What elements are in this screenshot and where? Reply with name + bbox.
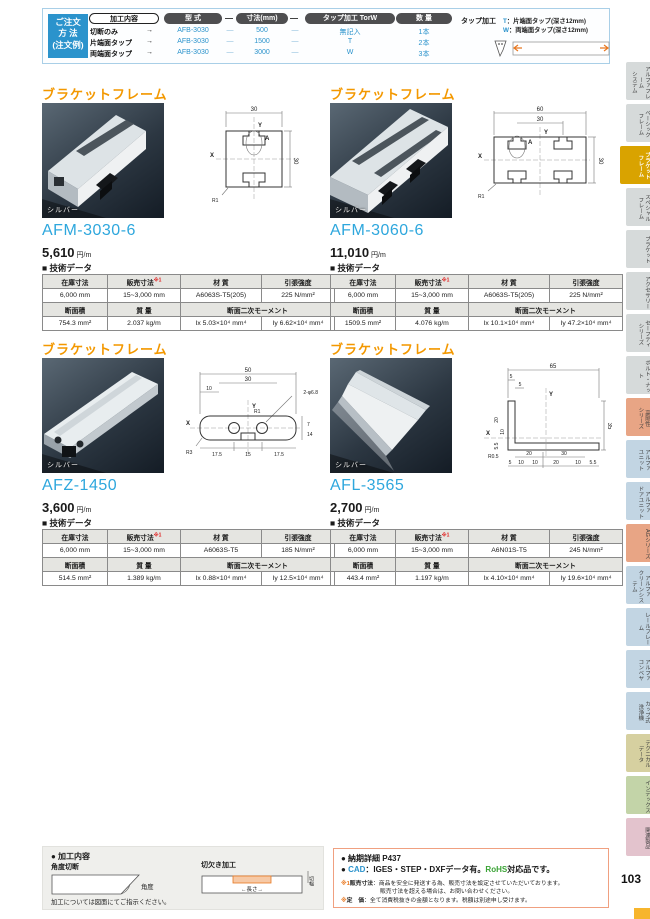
td-sales: 15~3,000 mm [396,289,469,303]
tab-bracket[interactable]: ブラケット [626,230,650,268]
th-material: 材 質 [469,275,550,289]
tab-technical-data[interactable]: テクニカル データ [626,734,650,772]
col-size: 寸法(mm) [236,13,288,24]
th-mass: 質 量 [396,558,469,572]
cross-section-diagram: 30 A Y X 30 R1 [170,103,324,221]
arrow-icon: → [146,27,153,34]
svg-text:15: 15 [245,452,251,458]
row-processing: 片端面タップ [90,38,150,48]
extrusion-photo-art [330,358,452,473]
td-iy: Iy 6.62×10⁴ mm⁴ [262,317,335,331]
tap-legend-title: タップ加工 [461,16,496,26]
svg-text:30: 30 [561,451,567,457]
svg-text:17.5: 17.5 [274,452,284,458]
price-value: 11,010 [330,245,369,260]
angle-cut-label: 角度切断 [51,862,79,872]
tab-alpha-conveyor[interactable]: アルファ コンベヤ [626,650,650,688]
svg-text:5: 5 [519,382,522,388]
th-material: 材 質 [469,530,550,544]
tab-alpha-unit[interactable]: アルファ ユニット [626,440,650,478]
td-area: 754.3 mm² [43,317,108,331]
svg-text:30: 30 [537,117,544,123]
th-mass: 質 量 [108,558,181,572]
tab-rail-frame[interactable]: レールフレーム [626,608,650,646]
svg-text:5: 5 [509,460,512,466]
product-code[interactable]: AFM-3060-6 [330,222,424,240]
note-text: ：全て消費税抜きの金額となります。税額は別途申し受けます。 [364,898,531,904]
product-photo: シルバー [42,103,164,218]
color-label: シルバー [47,460,79,470]
tab-accessory[interactable]: アクセサリー [626,272,650,310]
dash: — [290,38,300,45]
cad-rohs-note: ● CAD：IGES・STEP・DXFデータ有。RoHS対応品です。 [341,864,554,875]
svg-text:20: 20 [553,460,559,466]
svg-text:R3: R3 [186,450,193,456]
row-model: AFB-3030 [164,49,222,56]
svg-text:60: 60 [537,107,544,113]
tab-bracket-frame-active[interactable]: ブラケット フレーム [620,146,650,184]
extrusion-photo-art [330,103,452,218]
th-tensile: 引張強度 [550,275,623,289]
th-moment: 断面二次モーメント [469,558,623,572]
svg-text:30: 30 [251,107,258,113]
th-sales: 販売寸法※1 [108,275,181,289]
th-stock: 在庫寸法 [331,275,396,289]
th-mass: 質 量 [396,303,469,317]
svg-text:10: 10 [532,460,538,466]
td-ix: Ix 5.03×10⁴ mm⁴ [181,317,262,331]
row-size: 500 [236,27,288,34]
svg-text:10: 10 [206,386,212,392]
col-qty: 数 量 [396,13,452,24]
cross-section-drawing: 65 5 5 Y X 35 20 10 5.5 20 30 5 10 10 20… [458,358,612,476]
svg-text:5.5: 5.5 [590,460,597,466]
processing-info-box: ● 加工内容 角度切断 角度 切欠き加工 切幅 ←長さ→ 加工については図面にて… [42,846,324,910]
svg-text:切幅: 切幅 [308,875,314,887]
svg-text:7: 7 [307,422,310,428]
cross-section-diagram: 60 30 A Y X 30 R1 [458,103,612,221]
td-mass: 1.389 kg/m [108,572,181,586]
cad-label: CAD [348,865,365,874]
th-moment: 断面二次モーメント [469,303,623,317]
price-value: 5,610 [42,245,75,260]
th-moment: 断面二次モーメント [181,558,335,572]
th-tensile: 引張強度 [262,530,335,544]
tech-table: 在庫寸法 販売寸法※1 材 質 引張強度 6,000 mm 15~3,000 m… [42,529,335,586]
note-label: 定 価 [347,898,364,904]
product-card: ブラケットフレーム シルバー 65 5 5 Y X 35 20 1 [330,339,612,589]
dash: — [290,27,300,34]
td-ix: Ix 10.1×10⁴ mm⁴ [469,317,550,331]
row-size: 3000 [236,49,288,56]
row-tap: T [305,38,395,45]
th-area: 断面積 [43,558,108,572]
tap-w-text: ：両端面タップ(深さ12mm) [509,27,588,34]
th-tensile: 引張強度 [262,275,335,289]
tab-safety-series[interactable]: セーフティ シリーズ [626,314,650,352]
product-card: ブラケットフレーム シルバー 60 30 [330,84,612,334]
cross-section-drawing: 30 A Y X 30 R1 [170,103,324,221]
dash: — [225,14,233,23]
td-sales: 15~3,000 mm [108,289,181,303]
cross-section-drawing: 50 30 10 2-φ6.8 Y X R1 17.5 15 17.5 7 14 [170,358,324,476]
tap-t-text: ：片端面タップ(深さ12mm) [507,18,586,25]
price-value: 3,600 [42,500,75,515]
svg-text:A: A [528,140,533,146]
note-label: 販売寸法 [350,881,373,887]
td-stock: 6,000 mm [43,544,108,558]
price-note: ※定 価：全て消費税抜きの金額となります。税額は別途申し受けます。 [341,895,531,904]
tab-ag-series[interactable]: AGシリーズ [626,524,650,562]
dash: — [290,49,300,56]
row-tap: W [305,49,395,56]
svg-text:20: 20 [494,417,500,423]
svg-text:X: X [486,431,490,437]
sales-size-note-2: 販売寸法を超える場合は、お問い合わせください。 [380,886,513,895]
svg-text:2-φ6.8: 2-φ6.8 [303,390,318,396]
th-sales: 販売寸法※1 [396,275,469,289]
svg-text:←長さ→: ←長さ→ [241,886,263,893]
cross-section-drawing: 60 30 A Y X 30 R1 [458,103,612,221]
th-stock: 在庫寸法 [43,530,108,544]
product-category: ブラケットフレーム [330,339,456,358]
tech-data-heading: ■ 技術データ [42,262,92,274]
product-price: 11,010円/m [330,244,386,262]
page-number: 103 [621,872,641,886]
th-stock: 在庫寸法 [43,275,108,289]
row-processing: 切断のみ [90,27,150,37]
product-photo: シルバー [330,103,452,218]
extrusion-photo-art [42,103,164,218]
tap-diagram-icon [491,38,617,62]
price-unit: 円/m [77,507,92,514]
col-tap: タップ加工 TorW [305,13,395,24]
svg-text:Y: Y [549,392,553,398]
td-material: A6063S-T5 [181,544,262,558]
svg-text:角度: 角度 [141,882,154,891]
color-label: シルバー [47,205,79,215]
svg-text:17.5: 17.5 [212,452,222,458]
delivery-note: ● 納期詳細 P437 [341,853,401,864]
td-mass: 4.076 kg/m [396,317,469,331]
rohs-text: 対応品です。 [507,865,554,874]
td-tensile: 185 N/mm² [262,544,335,558]
td-iy: Iy 12.5×10⁴ mm⁴ [262,572,335,586]
td-tensile: 225 N/mm² [550,289,623,303]
td-ix: Ix 4.10×10⁴ mm⁴ [469,572,550,586]
product-code[interactable]: AFM-3030-6 [42,222,136,240]
svg-text:20: 20 [526,451,532,457]
td-sales: 15~3,000 mm [396,544,469,558]
dash: — [225,49,235,56]
th-sales: 販売寸法※1 [396,530,469,544]
bullet-icon: ● [341,865,348,874]
page-corner-mark [634,908,650,919]
tech-table: 在庫寸法 販売寸法※1 材 質 引張強度 6,000 mm 15~3,000 m… [330,529,623,586]
td-stock: 6,000 mm [331,289,396,303]
product-card: ブラケットフレーム シルバー 50 30 10 2-φ6.8 [42,339,324,589]
th-moment: 断面二次モーメント [181,303,335,317]
th-sales: 販売寸法※1 [108,530,181,544]
svg-text:10: 10 [500,429,506,435]
col-model: 型 式 [164,13,222,24]
svg-text:X: X [210,153,214,159]
tech-data-heading: ■ 技術データ [330,517,380,529]
tab-cup-washer[interactable]: カップ式 洗浄機 [626,692,650,730]
td-material: A6N01S-T5 [469,544,550,558]
svg-text:Y: Y [258,123,262,129]
td-sales: 15~3,000 mm [108,544,181,558]
svg-text:30: 30 [292,158,298,165]
order-method-box: ご注文 方 法 (注文例) 加工内容 型 式 — 寸法(mm) — タップ加工 … [42,8,610,64]
tab-related-products[interactable]: 関連製品 [626,818,650,856]
svg-text:R0.5: R0.5 [488,454,499,460]
td-ix: Ix 0.88×10⁴ mm⁴ [181,572,262,586]
th-area: 断面積 [43,303,108,317]
td-iy: Iy 47.2×10⁴ mm⁴ [550,317,623,331]
svg-text:R1: R1 [212,198,219,204]
color-label: シルバー [335,205,367,215]
notes-box: ● 納期詳細 P437 ● CAD：IGES・STEP・DXFデータ有。RoHS… [333,848,609,908]
row-qty: 2本 [396,38,452,48]
rohs-label: RoHS [485,865,507,874]
th-area: 断面積 [331,303,396,317]
th-area: 断面積 [331,558,396,572]
td-material: A6063S-T5(205) [469,289,550,303]
product-category: ブラケットフレーム [42,339,168,358]
row-processing: 両端面タップ [90,49,150,59]
color-label: シルバー [335,460,367,470]
svg-text:30: 30 [245,377,252,383]
product-photo: シルバー [42,358,164,473]
tech-table: 在庫寸法 販売寸法※1 材 質 引張強度 6,000 mm 15~3,000 m… [330,274,623,331]
td-area: 514.5 mm² [43,572,108,586]
arrow-icon: → [146,49,153,56]
product-code[interactable]: AFZ-1450 [42,477,117,495]
tech-table: 在庫寸法 販売寸法※1 材 質 引張強度 6,000 mm 15~3,000 m… [42,274,335,331]
td-area: 443.4 mm² [331,572,396,586]
th-tensile: 引張強度 [550,530,623,544]
cross-section-diagram: 50 30 10 2-φ6.8 Y X R1 17.5 15 17.5 7 14 [170,358,324,476]
tab-bolt-nut[interactable]: ボルト・ナット [626,356,650,394]
notch-cut-diagram: 切幅 ←長さ→ [201,869,321,899]
tap-legend-w: W：両端面タップ(深さ12mm) [503,25,588,34]
td-area: 1509.5 mm² [331,317,396,331]
chapter-tab-sidebar: アルファフレーム システム ベーシック フレーム ブラケット フレーム スペシャ… [620,62,650,860]
processing-note: 加工については図面にてご指示ください。 [51,897,170,906]
row-qty: 3本 [396,49,452,59]
tech-data-heading: ■ 技術データ [330,262,380,274]
row-qty: 1本 [396,27,452,37]
th-stock: 在庫寸法 [331,530,396,544]
svg-text:Y: Y [544,130,548,136]
note-mark: ※1 [341,881,350,887]
tab-alpha-door-unit[interactable]: アルファ ドアユニット [626,482,650,520]
angle-cut-diagram: 角度 [51,872,171,898]
svg-text:A: A [265,136,270,142]
col-processing: 加工内容 [89,13,159,24]
price-unit: 円/m [371,252,386,259]
th-mass: 質 量 [108,303,181,317]
processing-title: ● 加工内容 [51,851,90,862]
svg-text:10: 10 [575,460,581,466]
product-category: ブラケットフレーム [42,84,168,103]
cross-section-diagram: 65 5 5 Y X 35 20 10 5.5 20 30 5 10 10 20… [458,358,612,476]
tab-special-frame[interactable]: スペシャル フレーム [626,188,650,226]
price-unit: 円/m [77,252,92,259]
product-price: 2,700円/m [330,499,379,517]
tech-data-heading: ■ 技術データ [42,517,92,529]
svg-text:30: 30 [597,158,603,165]
cad-text: ：IGES・STEP・DXFデータ有。 [365,865,485,874]
td-stock: 6,000 mm [43,289,108,303]
svg-text:X: X [186,421,190,427]
product-code[interactable]: AFL-3565 [330,477,404,495]
tab-index[interactable]: インデックス [626,776,650,814]
svg-text:X: X [478,154,482,160]
td-iy: Iy 19.6×10⁴ mm⁴ [550,572,623,586]
row-size: 1500 [236,38,288,45]
price-unit: 円/m [365,507,380,514]
svg-text:65: 65 [550,364,557,370]
th-material: 材 質 [181,275,262,289]
svg-text:50: 50 [245,368,252,374]
row-tap: 無記入 [305,27,395,37]
td-tensile: 245 N/mm² [550,544,623,558]
product-category: ブラケットフレーム [330,84,456,103]
product-price: 5,610円/m [42,244,91,262]
td-mass: 1.197 kg/m [396,572,469,586]
tab-basic-frame[interactable]: ベーシック フレーム [626,104,650,142]
arrow-icon: → [146,38,153,45]
svg-text:R1: R1 [254,409,261,415]
svg-text:5.5: 5.5 [494,442,500,449]
tab-high-rigidity-series[interactable]: 高剛性 シリーズ [626,398,650,436]
svg-text:10: 10 [518,460,524,466]
td-material: A6063S-T5(205) [181,289,262,303]
product-photo: シルバー [330,358,452,473]
product-price: 3,600円/m [42,499,91,517]
svg-text:14: 14 [307,432,313,438]
dash: — [225,27,235,34]
th-material: 材 質 [181,530,262,544]
dash: — [225,38,235,45]
dash: — [290,14,298,23]
price-value: 2,700 [330,500,363,515]
svg-text:35: 35 [606,423,612,430]
extrusion-photo-art [42,358,164,473]
svg-text:5: 5 [510,374,513,380]
product-card: ブラケットフレーム シルバー 30 A Y X 30 [42,84,324,334]
td-tensile: 225 N/mm² [262,289,335,303]
row-model: AFB-3030 [164,38,222,45]
row-model: AFB-3030 [164,27,222,34]
tab-alpha-clean-system[interactable]: アルファ クリーンシステム [626,566,650,604]
tap-legend-t: T：片端面タップ(深さ12mm) [503,16,586,25]
td-stock: 6,000 mm [331,544,396,558]
svg-text:R1: R1 [478,194,485,200]
td-mass: 2.037 kg/m [108,317,181,331]
tab-alphaframe-system[interactable]: アルファフレーム システム [626,62,650,100]
